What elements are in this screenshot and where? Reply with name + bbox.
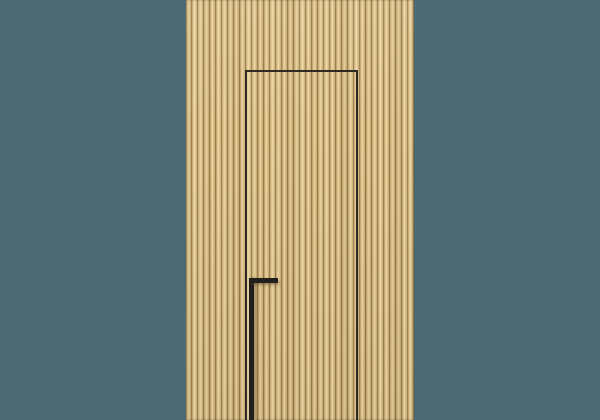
wood-slat-panel (186, 0, 414, 420)
door-handle[interactable] (249, 278, 254, 420)
door-handle-top-return[interactable] (249, 278, 278, 283)
scene (0, 0, 600, 420)
concealed-door[interactable] (245, 70, 358, 420)
